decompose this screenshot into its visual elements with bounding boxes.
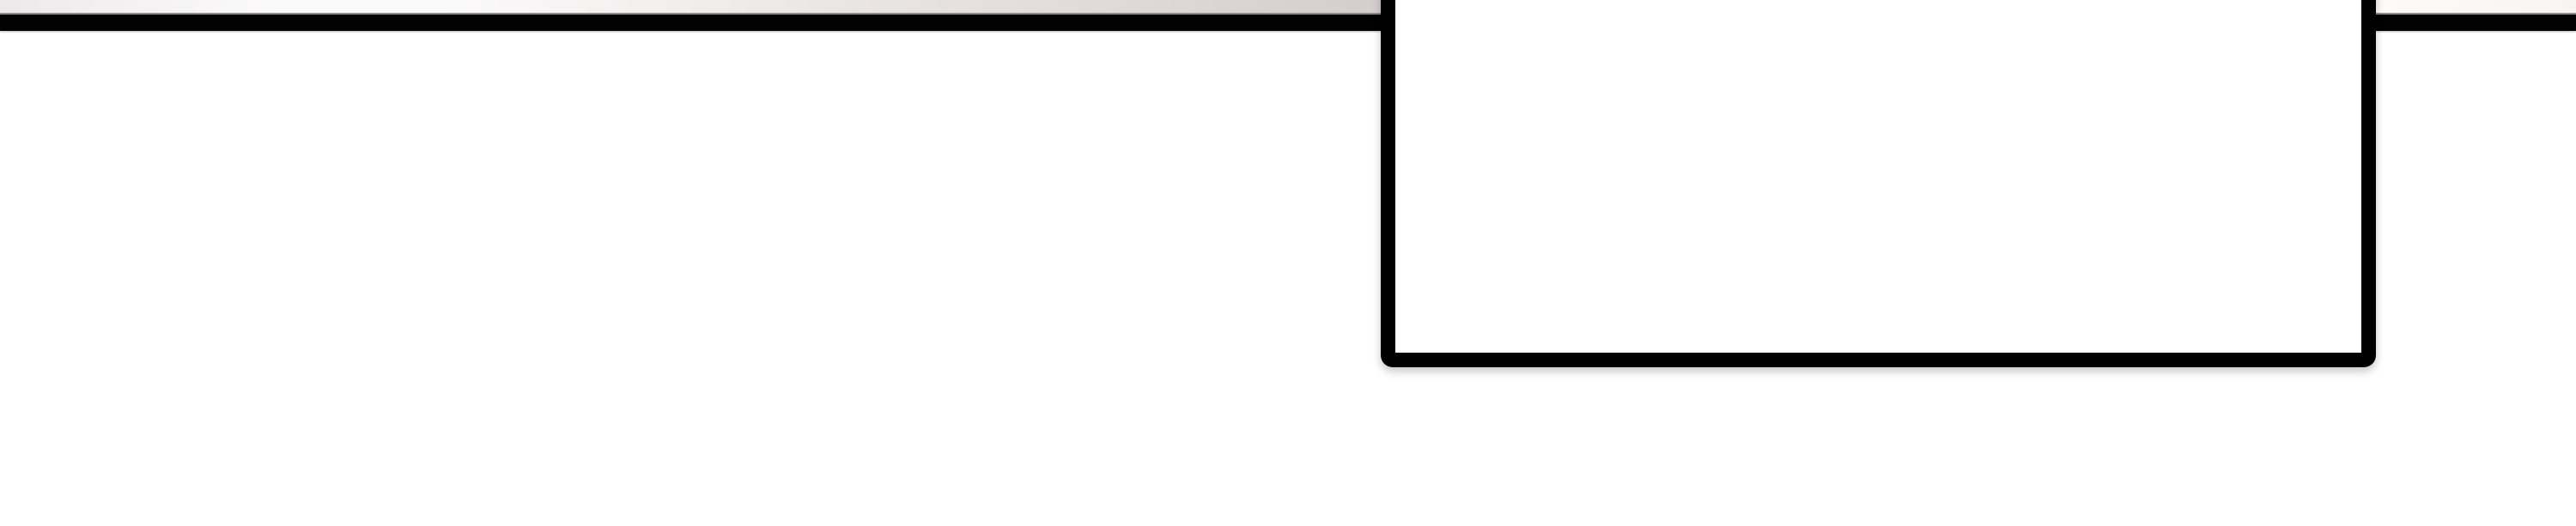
window-top-edge-right <box>2376 0 2576 13</box>
dropdown-panel-body <box>1395 0 2361 353</box>
window-top-edge-left <box>0 0 1381 13</box>
dropdown-panel[interactable] <box>1381 0 2376 367</box>
screen <box>0 0 2576 526</box>
